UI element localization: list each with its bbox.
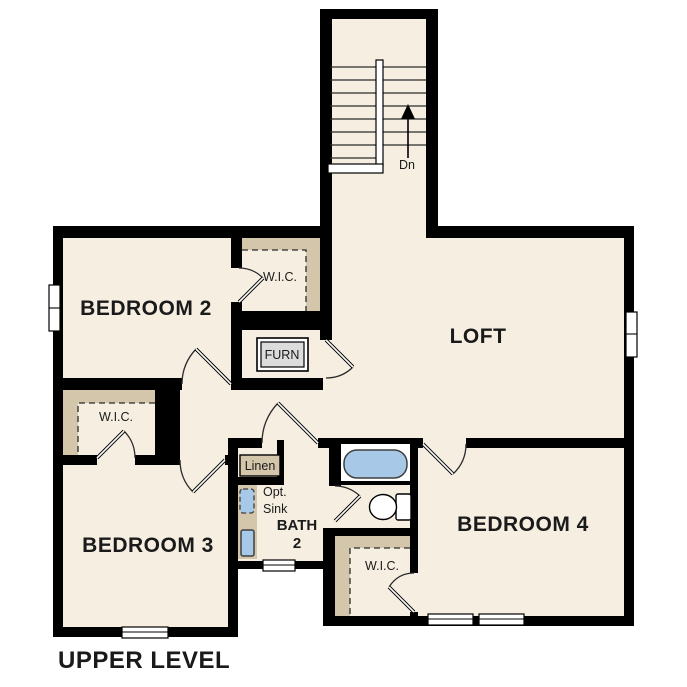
page-title: UPPER LEVEL — [58, 647, 230, 674]
bedroom4-window-right-icon — [479, 614, 524, 625]
sink-icon — [241, 530, 254, 556]
furnace-label: FURN — [265, 348, 300, 362]
furnace-box: FURN — [257, 338, 308, 371]
wic3-shelf-top — [63, 390, 155, 403]
wic4-shelf-top — [335, 536, 410, 548]
opt-sink-label-line1: Opt. — [263, 485, 287, 499]
stairs-dn-label: Dn — [399, 158, 415, 172]
wic2-shelf-right — [306, 238, 320, 311]
wic-label-bedroom-4: W.I.C. — [365, 559, 399, 573]
room-label-bath-line1: BATH — [277, 517, 318, 534]
room-label-bedroom-2: BEDROOM 2 — [80, 297, 212, 320]
wic-label-bedroom-2: W.I.C. — [263, 270, 297, 284]
room-label-bedroom-4: BEDROOM 4 — [457, 513, 589, 536]
linen-label: Linen — [245, 459, 276, 473]
bedroom2-window-icon — [49, 285, 60, 331]
loft-window-icon — [626, 312, 637, 357]
stair-stringer — [376, 60, 383, 166]
upper-body-floor — [63, 238, 624, 455]
wic-label-bedroom-3: W.I.C. — [99, 410, 133, 424]
room-label-loft: LOFT — [450, 325, 507, 348]
linen-closet-label: Linen — [240, 455, 280, 476]
bathtub-icon — [344, 450, 407, 478]
toilet-icon — [370, 494, 412, 520]
bath-window-icon — [263, 560, 295, 571]
bedroom3-window-icon — [122, 627, 168, 638]
optional-sink-icon — [240, 489, 254, 513]
opt-sink-label-line2: Sink — [263, 502, 288, 516]
stair-landing-edge — [328, 164, 383, 173]
floor-plan: Dn — [0, 0, 687, 687]
floor-plan-canvas: Dn — [0, 0, 687, 687]
room-label-bedroom-3: BEDROOM 3 — [82, 534, 214, 557]
room-label-bath-line2: 2 — [293, 535, 301, 552]
bedroom4-window-left-icon — [428, 614, 473, 625]
